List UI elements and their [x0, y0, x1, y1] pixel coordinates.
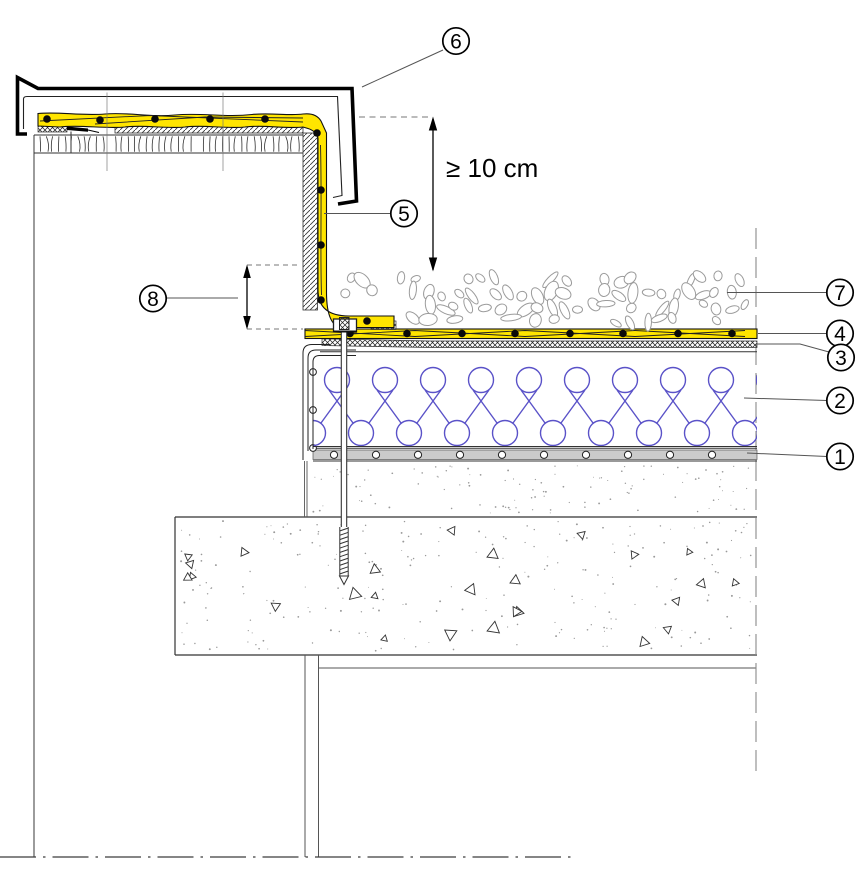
waterproofing-membrane-upstand [38, 113, 394, 328]
section-drawing-svg: ≥ 10 cm 6 5 8 7 [0, 0, 867, 877]
concrete-stipple [180, 465, 751, 651]
construction-detail-drawing: ≥ 10 cm 6 5 8 7 [0, 0, 867, 877]
dimension-8 [243, 265, 303, 330]
callout-1-label: 1 [834, 446, 846, 469]
screw-thread-hatch [340, 528, 349, 574]
callout-1: 1 [747, 443, 853, 469]
field-membrane [305, 329, 757, 339]
arrow-up [243, 265, 251, 279]
membrane-clamp-bar [67, 127, 88, 132]
upstand-board-vertical [303, 133, 318, 310]
dimension-label: ≥ 10 cm [446, 153, 538, 183]
wood-blocking-hatch [40, 136, 299, 151]
membrane-seam-vertical [321, 145, 322, 295]
callout-7-label: 7 [834, 282, 846, 305]
callout-4-label: 4 [834, 323, 846, 346]
arrow-down [429, 258, 437, 272]
gravel-ballast [341, 268, 750, 331]
callout-8-label: 8 [147, 288, 159, 311]
callout-8: 8 [140, 285, 238, 311]
callout-6-label: 6 [450, 31, 462, 54]
callout-2-label: 2 [834, 390, 846, 413]
callout-5: 5 [324, 200, 417, 226]
callout-2: 2 [744, 387, 853, 413]
arrow-down [243, 316, 251, 330]
callout-5-label: 5 [398, 203, 410, 226]
insulation-layer [313, 352, 757, 447]
screw-tip [340, 576, 349, 585]
callout-6: 6 [362, 28, 469, 87]
aggregate-triangles [184, 527, 740, 647]
fixing-washer [340, 318, 350, 330]
callout-3-label: 3 [835, 347, 847, 370]
left-wall [34, 132, 303, 858]
clamp-tail [88, 130, 99, 133]
separation-layer [322, 339, 757, 348]
concrete-slab [175, 461, 757, 857]
callout-3: 3 [757, 344, 854, 371]
callout-4: 4 [758, 320, 853, 346]
arrow-up [429, 117, 437, 131]
dimension-10cm: ≥ 10 cm [359, 117, 538, 272]
